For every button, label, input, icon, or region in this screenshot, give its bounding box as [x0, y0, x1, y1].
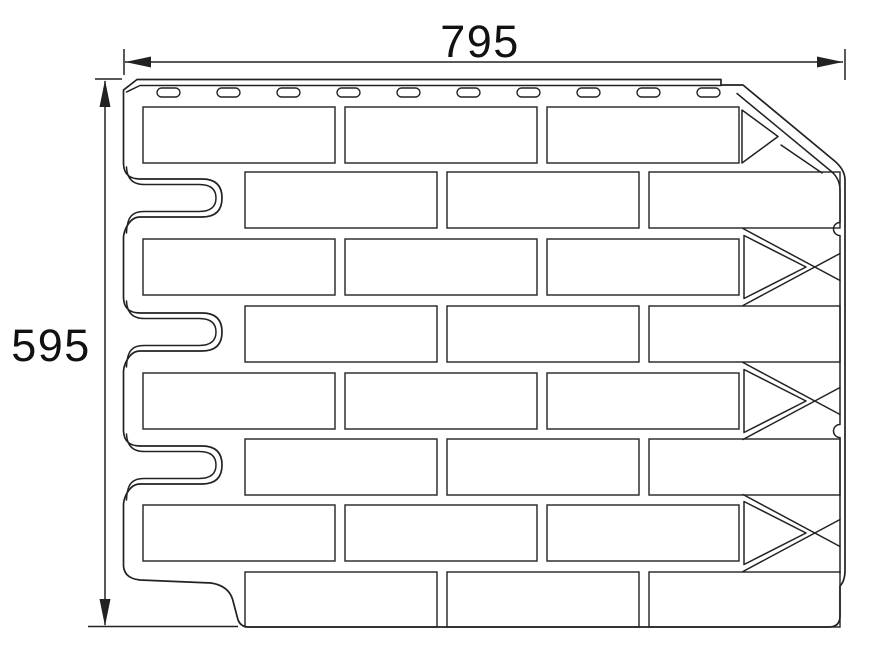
- arrow-channel-lower: [743, 254, 840, 306]
- arrow-channel-upper: [743, 363, 840, 415]
- nail-slot: [577, 88, 600, 97]
- brick: [245, 439, 437, 495]
- nail-slot: [337, 88, 360, 97]
- brick: [547, 107, 739, 163]
- brick: [245, 572, 437, 627]
- brick: [345, 373, 537, 429]
- brick: [649, 306, 840, 362]
- tab-inner-contour: [127, 301, 217, 367]
- dimension-width: 795: [124, 16, 845, 80]
- brick: [547, 239, 739, 295]
- brick: [649, 439, 840, 495]
- nail-slot: [277, 88, 300, 97]
- nail-slot: [217, 88, 240, 97]
- nail-strip-inner-line: [127, 86, 722, 93]
- nail-slot: [157, 88, 180, 97]
- brick: [143, 373, 335, 429]
- arrow-channel-upper: [743, 495, 840, 547]
- tab-inner-contour: [127, 167, 217, 233]
- height-arrow-top: [100, 80, 111, 107]
- brick: [143, 107, 335, 163]
- facade-panel-drawing: 795 595: [0, 0, 875, 657]
- right-edge-inner-line: [737, 94, 840, 574]
- brick: [547, 373, 739, 429]
- technical-drawing-canvas: 795 595: [0, 0, 875, 657]
- brick: [143, 239, 335, 295]
- nail-slot: [697, 88, 720, 97]
- dimension-height: 595: [11, 79, 238, 627]
- brick: [547, 505, 739, 561]
- brick: [447, 172, 639, 228]
- brick: [345, 239, 537, 295]
- brick: [345, 107, 537, 163]
- brick: [447, 306, 639, 362]
- nail-slot: [397, 88, 420, 97]
- arrow-channel-lower: [743, 388, 840, 440]
- nail-slot: [457, 88, 480, 97]
- brick: [447, 572, 639, 627]
- panel: [124, 80, 846, 628]
- brick-grid: [143, 107, 840, 627]
- width-arrow-left: [125, 57, 151, 68]
- brick: [649, 572, 840, 627]
- brick: [143, 505, 335, 561]
- width-dimension-label: 795: [440, 16, 520, 67]
- nail-slot: [637, 88, 660, 97]
- brick: [245, 306, 437, 362]
- arrow-interlocks: [743, 229, 840, 572]
- nail-slot: [517, 88, 540, 97]
- corner-arrow-triangle: [742, 110, 778, 163]
- brick: [649, 172, 840, 228]
- arrow-channel-upper: [743, 229, 840, 281]
- tab-inner-contour: [127, 434, 217, 500]
- height-dimension-label: 595: [11, 320, 91, 371]
- nail-slots: [157, 88, 720, 97]
- brick: [345, 505, 537, 561]
- brick: [245, 172, 437, 228]
- panel-outline: [124, 80, 846, 628]
- height-arrow-bottom: [100, 599, 111, 626]
- arrow-channel-lower: [743, 520, 840, 572]
- brick: [447, 439, 639, 495]
- width-arrow-right: [817, 57, 843, 68]
